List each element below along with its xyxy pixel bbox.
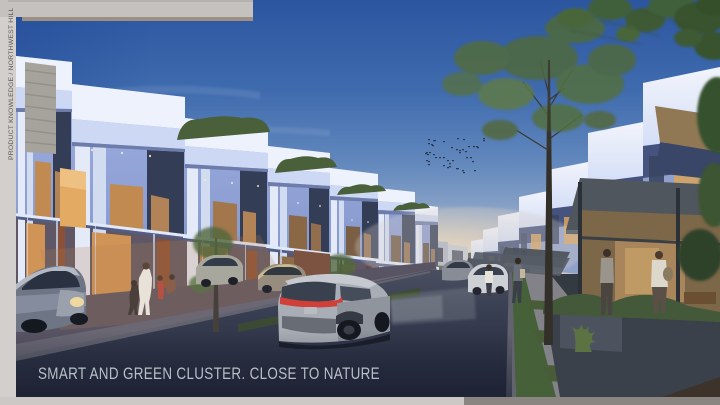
svg-text:SMART AND GREEN CLUSTER. CLOSE: SMART AND GREEN CLUSTER. CLOSE TO NATURE: [38, 365, 380, 384]
svg-text:PRODUCT KNOWLEDGE / NORTHWEST: PRODUCT KNOWLEDGE / NORTHWEST HILL: [8, 7, 15, 160]
